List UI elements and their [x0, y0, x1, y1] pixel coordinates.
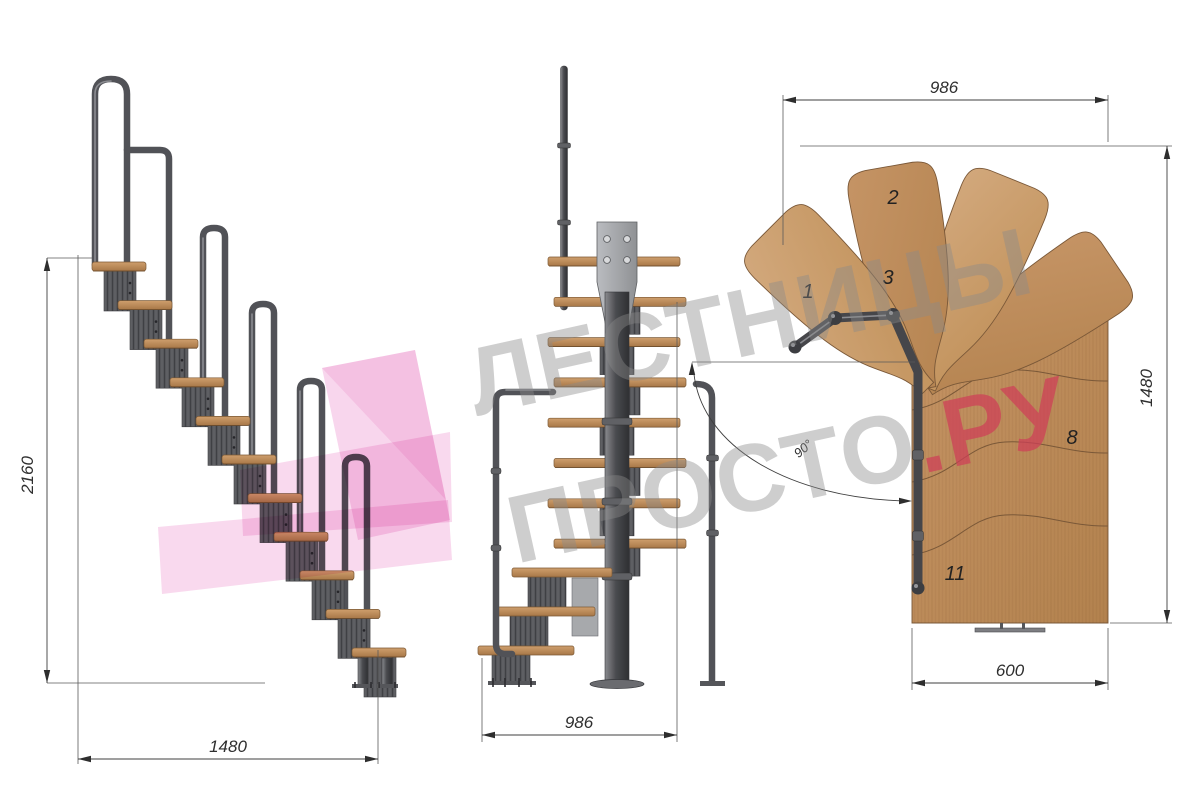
base-plate-top-view: [975, 623, 1045, 632]
staircase-drawing: 2160 1480: [0, 0, 1200, 807]
dim-label-1480-side: 1480: [209, 737, 247, 756]
tread-number-11: 11: [945, 563, 966, 585]
dim-top-986-plan: 986: [783, 78, 1108, 245]
handrail-mast: [558, 66, 571, 310]
dim-label-600-plan: 600: [996, 661, 1025, 680]
dim-label-986-front: 986: [565, 713, 594, 732]
technical-drawing-page: 2160 1480: [0, 0, 1200, 807]
dim-label-986-plan: 986: [930, 78, 959, 97]
tread-number-2: 2: [886, 187, 898, 209]
dim-bottom-600-plan: 600: [912, 628, 1108, 690]
dim-label-1480-plan: 1480: [1137, 369, 1156, 407]
dim-label-2160: 2160: [18, 456, 37, 495]
